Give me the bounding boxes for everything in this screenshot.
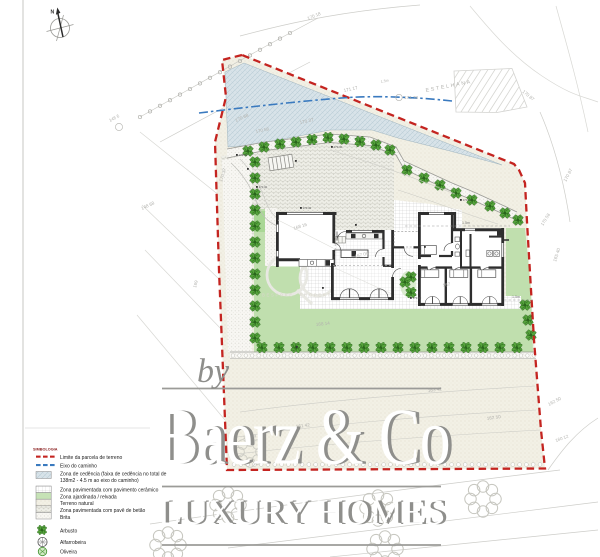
svg-text:Zona pavimentada com pavê de b: Zona pavimentada com pavê de betão [60, 508, 146, 514]
svg-text:169: 169 [192, 279, 199, 288]
svg-text:SIMBOLOGIA: SIMBOLOGIA [33, 448, 58, 452]
svg-text:Eixo do caminho: Eixo do caminho [60, 464, 97, 470]
svg-text:Arbusto: Arbusto [60, 529, 77, 535]
svg-text:Oliveira: Oliveira [60, 550, 77, 556]
svg-text:1.5m: 1.5m [462, 221, 470, 225]
svg-text:148 6: 148 6 [108, 113, 121, 123]
svg-text:170.40: 170.40 [303, 206, 312, 210]
svg-text:Limite da parcela de terreno: Limite da parcela de terreno [60, 455, 122, 461]
svg-text:148 68: 148 68 [140, 200, 155, 211]
svg-text:Alfarrobeira: Alfarrobeira [60, 540, 86, 546]
svg-text:LUXURY HOMES: LUXURY HOMES [158, 492, 445, 532]
svg-text:165 40: 165 40 [552, 247, 561, 262]
svg-text:170.40: 170.40 [334, 145, 343, 149]
svg-text:162 50: 162 50 [547, 396, 562, 407]
svg-text:160 12: 160 12 [555, 433, 570, 442]
svg-text:Brita: Brita [60, 515, 71, 521]
svg-text:Baerz & Co: Baerz & Co [158, 394, 451, 482]
svg-text:1.5m: 1.5m [380, 79, 389, 84]
svg-text:by: by [197, 353, 230, 390]
svg-text:171 78: 171 78 [404, 95, 418, 100]
svg-text:Zona ajardinada / relvada: Zona ajardinada / relvada [60, 494, 117, 500]
svg-text:170.40: 170.40 [239, 153, 248, 157]
svg-text:N: N [51, 10, 55, 16]
svg-text:1.5m: 1.5m [512, 295, 520, 299]
svg-text:170.40: 170.40 [463, 198, 472, 202]
svg-text:Zona de cedência (faixa de ced: Zona de cedência (faixa de cedência no t… [60, 472, 167, 478]
svg-text:Terreno natural: Terreno natural [60, 501, 94, 507]
svg-text:138m2 - 4.5 m ao eixo do camin: 138m2 - 4.5 m ao eixo do caminho) [60, 478, 139, 484]
svg-text:Zona pavimentada com pavimento: Zona pavimentada com pavimento cerâmico [60, 488, 159, 494]
svg-text:171 17: 171 17 [343, 85, 358, 93]
svg-text:170 87: 170 87 [562, 167, 573, 182]
svg-text:170 18: 170 18 [307, 11, 322, 21]
svg-text:170.40: 170.40 [413, 296, 422, 300]
svg-text:170.40: 170.40 [259, 185, 268, 189]
svg-text:170 58: 170 58 [540, 212, 552, 227]
